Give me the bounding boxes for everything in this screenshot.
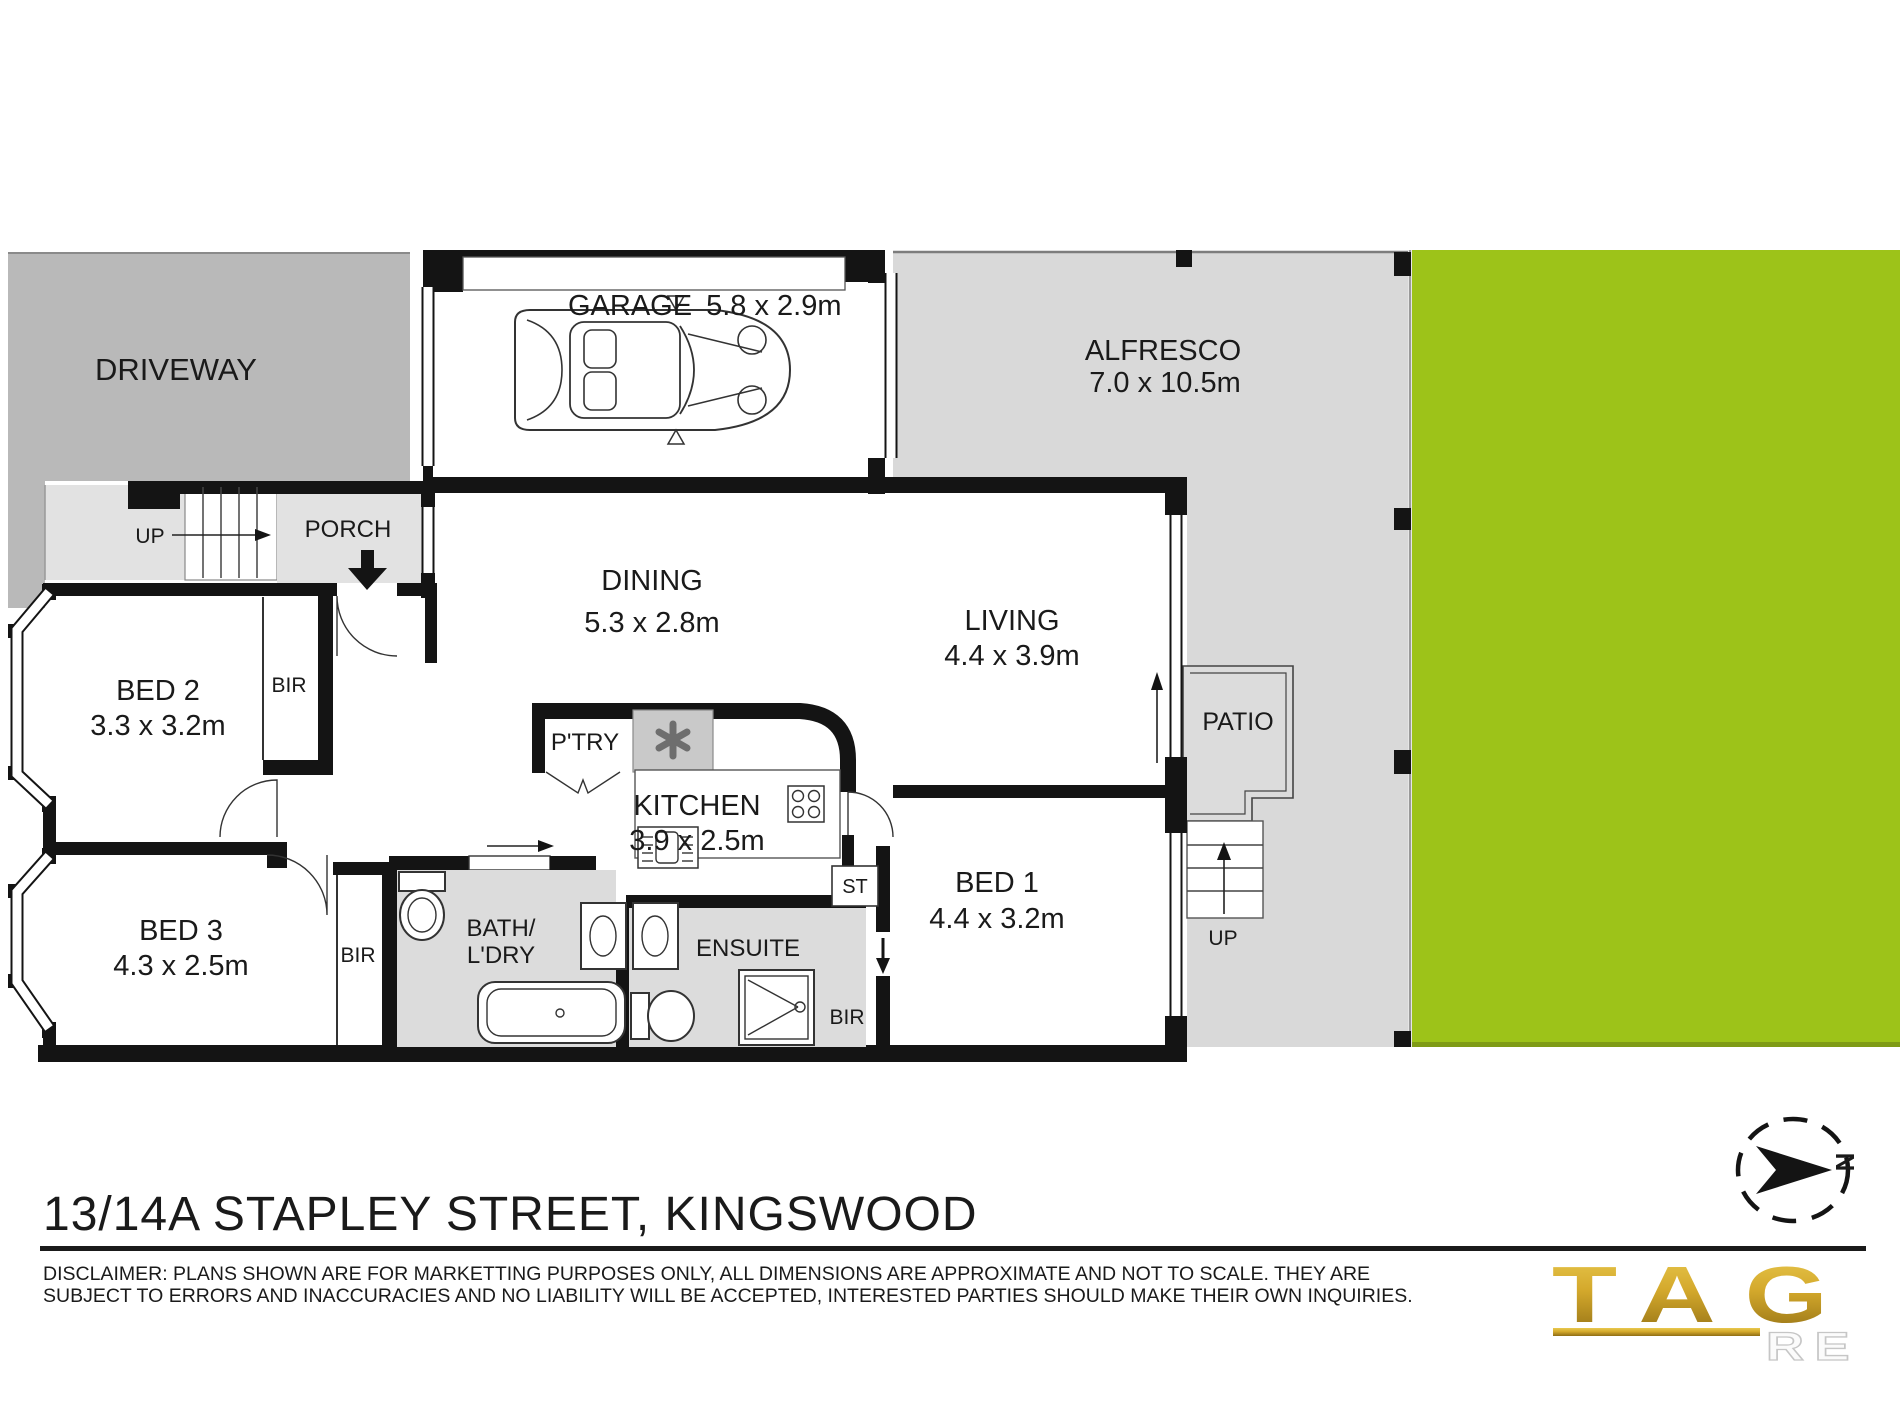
bathtub-icon bbox=[478, 982, 625, 1043]
bed1-dims: 4.4 x 3.2m bbox=[929, 903, 1064, 935]
bath-label-1: BATH/ bbox=[467, 915, 536, 942]
kitchen-dims: 3.9 x 2.5m bbox=[629, 825, 764, 857]
bed2-bir-label: BIR bbox=[271, 674, 306, 697]
bed3-label: BED 3 bbox=[139, 915, 223, 947]
bed2-door bbox=[220, 780, 277, 837]
living-dims: 4.4 x 3.9m bbox=[944, 640, 1079, 672]
logo-sub-text: RE bbox=[1766, 1325, 1860, 1369]
brand-logo: TAG RE bbox=[1552, 1250, 1860, 1369]
dining-dims: 5.3 x 2.8m bbox=[584, 607, 719, 639]
floorplan-page: DRIVEWAY GARAGE5.8 x 2.9m ALFRESCO 7.0 x… bbox=[0, 0, 1900, 1425]
ensuite-label: ENSUITE bbox=[696, 935, 800, 962]
ensuite-toilet-icon bbox=[631, 991, 694, 1041]
logo-underline bbox=[1553, 1328, 1760, 1336]
disclaimer-line-2: SUBJECT TO ERRORS AND INACCURACIES AND N… bbox=[43, 1285, 1413, 1307]
bed1-door bbox=[848, 792, 893, 837]
floorplan-canvas: DRIVEWAY GARAGE5.8 x 2.9m ALFRESCO 7.0 x… bbox=[0, 0, 1900, 1425]
driveway-label: DRIVEWAY bbox=[95, 352, 257, 387]
bed2-label: BED 2 bbox=[116, 675, 200, 707]
alfresco-label: ALFRESCO bbox=[1085, 335, 1241, 367]
footer: 13/14A STAPLEY STREET, KINGSWOOD DISCLAI… bbox=[40, 1119, 1866, 1369]
toilet-icon bbox=[399, 872, 445, 940]
cooktop-icon bbox=[788, 786, 824, 822]
patio-area bbox=[1183, 666, 1293, 821]
bed1-bir-label: BIR bbox=[829, 1006, 864, 1029]
grass-area bbox=[1412, 250, 1900, 1047]
kitchen-label: KITCHEN bbox=[633, 790, 760, 822]
bed1-label: BED 1 bbox=[955, 867, 1039, 899]
bed3-dims: 4.3 x 2.5m bbox=[113, 950, 248, 982]
patio-exit-arrow bbox=[1151, 672, 1163, 763]
driveway-strip bbox=[8, 481, 45, 608]
front-up-label: UP bbox=[135, 525, 164, 548]
compass-north-label: N bbox=[1830, 1153, 1860, 1172]
shower-icon bbox=[739, 970, 814, 1045]
living-label: LIVING bbox=[964, 605, 1059, 637]
bir-arrow-icon bbox=[876, 938, 890, 974]
rear-stairs bbox=[1187, 821, 1263, 918]
compass-icon: N bbox=[1738, 1119, 1860, 1221]
pantry-label: P'TRY bbox=[551, 729, 619, 756]
porch-label: PORCH bbox=[305, 516, 392, 543]
bath-label-2: L'DRY bbox=[467, 942, 535, 969]
garage-door bbox=[463, 257, 845, 290]
rear-up-label: UP bbox=[1208, 927, 1237, 950]
disclaimer-line-1: DISCLAIMER: PLANS SHOWN ARE FOR MARKETTI… bbox=[43, 1263, 1370, 1285]
patio-label: PATIO bbox=[1202, 708, 1273, 736]
alfresco-dims: 7.0 x 10.5m bbox=[1089, 367, 1241, 399]
storage-label: ST bbox=[842, 876, 868, 898]
entry-door bbox=[337, 596, 397, 656]
pantry-doors bbox=[546, 772, 620, 793]
bed3-bir-label: BIR bbox=[340, 944, 375, 967]
address-title: 13/14A STAPLEY STREET, KINGSWOOD bbox=[43, 1188, 978, 1241]
fridge-space bbox=[633, 710, 713, 772]
dining-label: DINING bbox=[601, 565, 703, 597]
bed2-dims: 3.3 x 3.2m bbox=[90, 710, 225, 742]
hall-arrow-icon bbox=[487, 840, 554, 852]
